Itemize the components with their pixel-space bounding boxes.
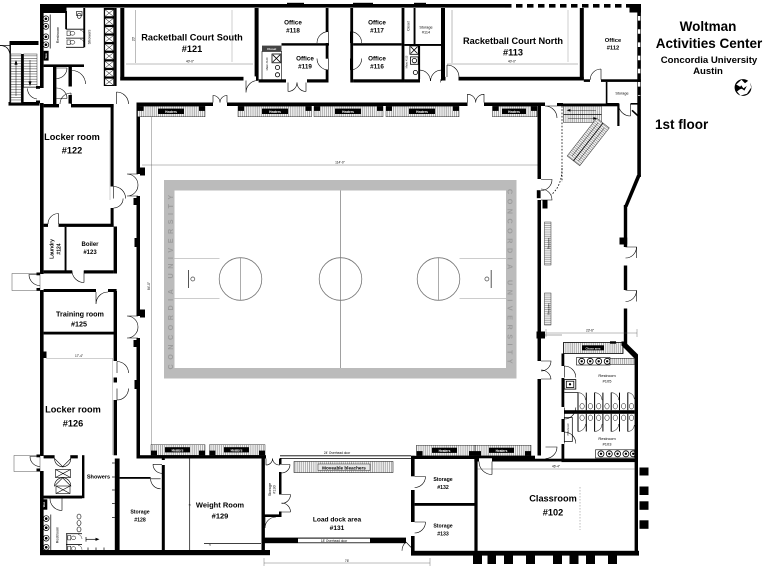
svg-text:#125: #125 bbox=[71, 320, 87, 329]
svg-text:#122: #122 bbox=[62, 146, 82, 156]
svg-text:Boiler: Boiler bbox=[81, 242, 99, 248]
svg-text:Heaters: Heaters bbox=[165, 110, 177, 114]
svg-text:#116: #116 bbox=[370, 64, 384, 71]
svg-text:24' Overhead door: 24' Overhead door bbox=[324, 451, 351, 455]
svg-text:Classroom: Classroom bbox=[529, 494, 577, 504]
svg-text:Heaters: Heaters bbox=[508, 110, 520, 114]
svg-text:#117: #117 bbox=[370, 28, 384, 35]
svg-text:Storage: Storage bbox=[268, 483, 272, 496]
svg-text:#133: #133 bbox=[437, 532, 449, 538]
svg-text:Heaters: Heaters bbox=[269, 110, 281, 114]
svg-text:84'-0": 84'-0" bbox=[147, 282, 151, 290]
svg-text:Office: Office bbox=[296, 56, 314, 63]
svg-text:Racketball Court North: Racketball Court North bbox=[463, 36, 563, 46]
svg-text:#105: #105 bbox=[603, 379, 613, 384]
svg-text:Chase area: Chase area bbox=[586, 346, 601, 350]
svg-text:#130: #130 bbox=[273, 485, 277, 493]
svg-text:Restroom: Restroom bbox=[598, 373, 616, 378]
svg-text:#121: #121 bbox=[182, 44, 202, 54]
svg-text:Bleachers: Bleachers bbox=[546, 303, 550, 315]
svg-text:Maint #115: Maint #115 bbox=[404, 55, 408, 68]
svg-text:Restroom: Restroom bbox=[598, 436, 616, 441]
svg-text:Storage: Storage bbox=[433, 524, 452, 530]
svg-text:#103: #103 bbox=[603, 442, 613, 447]
svg-text:Heaters: Heaters bbox=[416, 110, 428, 114]
svg-text:Restroom: Restroom bbox=[56, 27, 60, 43]
svg-text:Moveable bleachers: Moveable bleachers bbox=[322, 465, 366, 470]
svg-text:Training room: Training room bbox=[56, 310, 104, 319]
svg-text:Heaters: Heaters bbox=[342, 110, 354, 114]
svg-text:Restroom: Restroom bbox=[56, 527, 60, 543]
svg-text:Closet: Closet bbox=[407, 21, 411, 31]
svg-text:40'-0": 40'-0" bbox=[508, 60, 516, 64]
svg-text:Closet: Closet bbox=[267, 47, 276, 51]
svg-text:#129: #129 bbox=[212, 512, 229, 521]
svg-text:18' Overhead door: 18' Overhead door bbox=[321, 539, 348, 543]
svg-text:CONCORDIA UNIVERSITY: CONCORDIA UNIVERSITY bbox=[506, 189, 515, 368]
svg-text:Bleachers: Bleachers bbox=[546, 237, 550, 249]
svg-text:Load dock area: Load dock area bbox=[313, 517, 362, 524]
svg-text:20': 20' bbox=[132, 37, 136, 42]
svg-text:Activities Center: Activities Center bbox=[656, 36, 763, 51]
svg-text:#118: #118 bbox=[286, 28, 300, 35]
svg-text:Heaters: Heaters bbox=[231, 448, 243, 452]
svg-text:Concordia University: Concordia University bbox=[661, 55, 758, 66]
svg-text:Showers: Showers bbox=[87, 475, 110, 481]
svg-text:Storage: Storage bbox=[615, 92, 628, 96]
svg-text:Storage: Storage bbox=[130, 510, 149, 516]
svg-text:Office: Office bbox=[605, 38, 622, 44]
svg-text:23'-6": 23'-6" bbox=[586, 329, 594, 333]
svg-text:40'-0": 40'-0" bbox=[186, 60, 194, 64]
svg-text:114'-0": 114'-0" bbox=[335, 161, 345, 165]
svg-text:CONCORDIA UNIVERSITY: CONCORDIA UNIVERSITY bbox=[166, 190, 175, 369]
svg-text:Austin: Austin bbox=[693, 66, 723, 77]
svg-text:17'-4": 17'-4" bbox=[75, 354, 83, 358]
svg-text:Woltman: Woltman bbox=[680, 19, 737, 34]
svg-text:#119: #119 bbox=[298, 64, 312, 71]
svg-text:Office: Office bbox=[368, 56, 386, 63]
svg-text:Vest.: Vest. bbox=[43, 501, 46, 507]
svg-text:Storage: Storage bbox=[433, 477, 452, 483]
svg-text:Office: Office bbox=[284, 20, 302, 27]
svg-text:1st floor: 1st floor bbox=[655, 117, 709, 132]
svg-text:Heaters: Heaters bbox=[496, 449, 508, 453]
svg-text:#126: #126 bbox=[63, 419, 83, 429]
svg-text:Laundry: Laundry bbox=[50, 239, 56, 259]
svg-text:Maint #120: Maint #120 bbox=[265, 57, 269, 70]
svg-text:#123: #123 bbox=[83, 250, 97, 256]
svg-text:Heaters: Heaters bbox=[439, 449, 451, 453]
svg-text:#102: #102 bbox=[543, 508, 563, 518]
svg-text:#112: #112 bbox=[607, 46, 620, 52]
svg-text:Vest.: Vest. bbox=[45, 53, 48, 59]
svg-text:Locker room: Locker room bbox=[45, 405, 101, 415]
svg-text:#114: #114 bbox=[422, 31, 430, 35]
svg-text:Showers: Showers bbox=[88, 30, 92, 45]
svg-text:Heaters: Heaters bbox=[172, 448, 184, 452]
svg-text:Racketball Court South: Racketball Court South bbox=[141, 33, 243, 43]
svg-text:Office: Office bbox=[368, 20, 386, 27]
svg-text:Weight Room: Weight Room bbox=[196, 501, 245, 510]
svg-text:#128: #128 bbox=[134, 518, 146, 524]
svg-text:46'-4": 46'-4" bbox=[552, 465, 560, 469]
svg-text:Storage: Storage bbox=[419, 26, 432, 30]
svg-text:Locker room: Locker room bbox=[44, 132, 100, 142]
svg-text:#124: #124 bbox=[57, 243, 63, 254]
svg-text:PIPE/ELEC: PIPE/ELEC bbox=[567, 423, 570, 436]
svg-text:#131: #131 bbox=[330, 525, 345, 532]
svg-text:#132: #132 bbox=[437, 485, 449, 491]
svg-text:#113: #113 bbox=[503, 48, 523, 58]
svg-text:76': 76' bbox=[345, 559, 350, 563]
